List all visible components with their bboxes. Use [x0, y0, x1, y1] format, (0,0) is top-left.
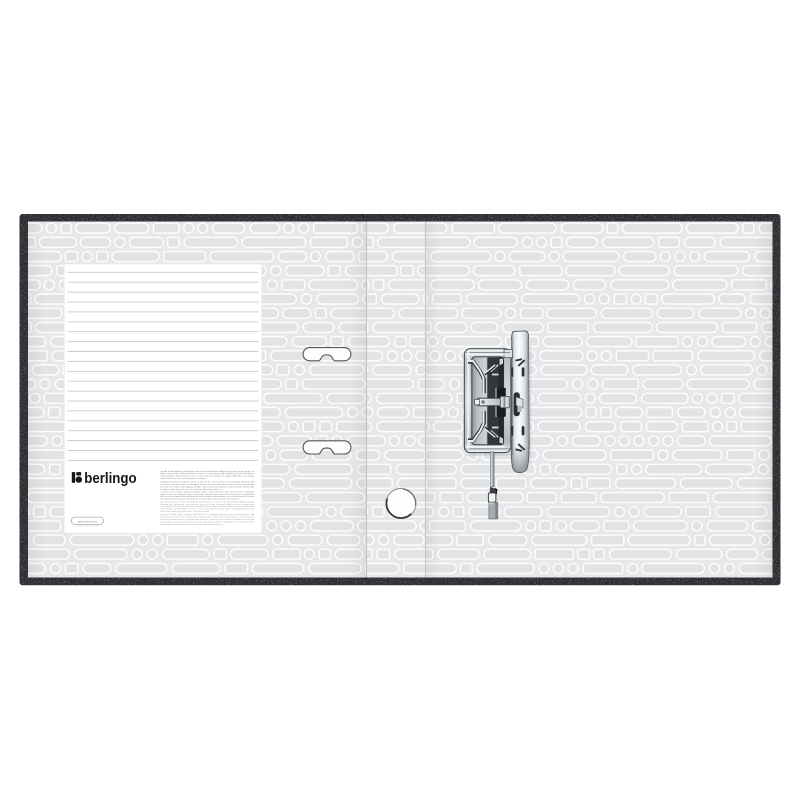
svg-text:berlingo: berlingo — [84, 471, 137, 487]
svg-text:ullamco do consequat elit aute: ullamco do consequat elit aute enim duis… — [160, 477, 206, 480]
svg-text:compact series folder label: compact series folder label — [76, 525, 99, 528]
svg-text:labore incididunt commodo ex v: labore incididunt commodo ex veniam null… — [160, 523, 223, 526]
svg-text:aute do consequat adipiscing q: aute do consequat adipiscing quis in ips… — [160, 510, 209, 513]
svg-text:nisi exercitation duis magna s: nisi exercitation duis magna sed laboris… — [160, 498, 239, 501]
svg-text:adventure time: adventure time — [78, 519, 98, 523]
